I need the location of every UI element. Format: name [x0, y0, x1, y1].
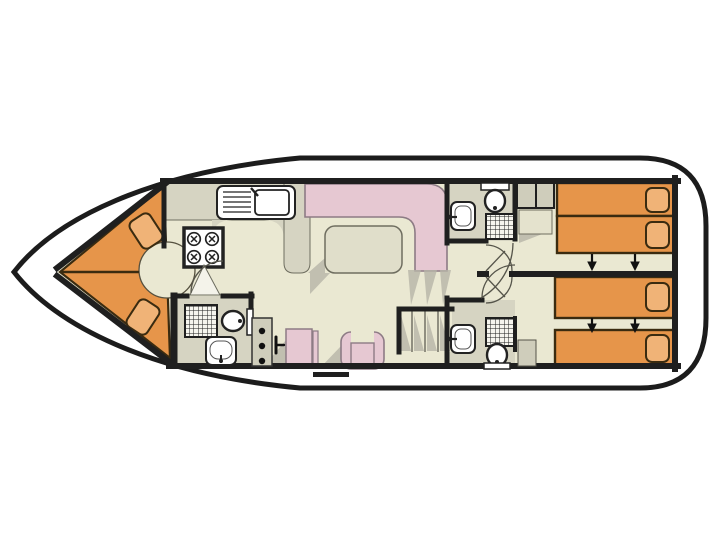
basin-inner	[455, 329, 471, 349]
gauge	[259, 328, 265, 334]
faucet-knob	[448, 337, 452, 341]
kitchen-sink-icon	[217, 186, 295, 219]
wardrobe	[517, 183, 554, 234]
pillow	[646, 222, 669, 248]
wardrobe-compartment	[517, 183, 536, 208]
pillow	[646, 283, 669, 311]
faucet-knob	[219, 359, 223, 363]
saloon-table	[325, 226, 402, 273]
helm-seat	[286, 329, 318, 366]
gauge	[259, 358, 265, 364]
basin-inner	[455, 206, 471, 226]
wardrobe-compartment	[536, 183, 554, 208]
armchair-seat	[351, 343, 374, 365]
aft-cabin-port	[557, 183, 675, 253]
toilet-base	[484, 363, 510, 369]
shower-icon	[185, 305, 217, 337]
washbasin-icon	[448, 202, 475, 230]
boarding-step-marker	[313, 372, 349, 377]
faucet-knob	[448, 215, 452, 219]
helm-seat-back	[313, 331, 318, 364]
washbasin-icon	[206, 337, 236, 365]
wardrobe-shelf	[519, 210, 552, 234]
floor-plan-svg	[0, 0, 720, 540]
pillow	[646, 188, 669, 212]
shower-icon	[486, 318, 514, 346]
gauge	[259, 343, 265, 349]
sink-bowl	[255, 190, 289, 215]
washbasin-icon	[448, 325, 475, 353]
boat-floor-plan	[0, 0, 720, 540]
shower-icon	[486, 214, 514, 239]
helm-seat-cushion	[286, 329, 312, 366]
armchair-opening	[351, 330, 374, 344]
toilet-flush	[493, 206, 497, 210]
cabinet	[518, 340, 536, 366]
pillow	[646, 335, 669, 362]
toilet-flush	[238, 319, 242, 323]
